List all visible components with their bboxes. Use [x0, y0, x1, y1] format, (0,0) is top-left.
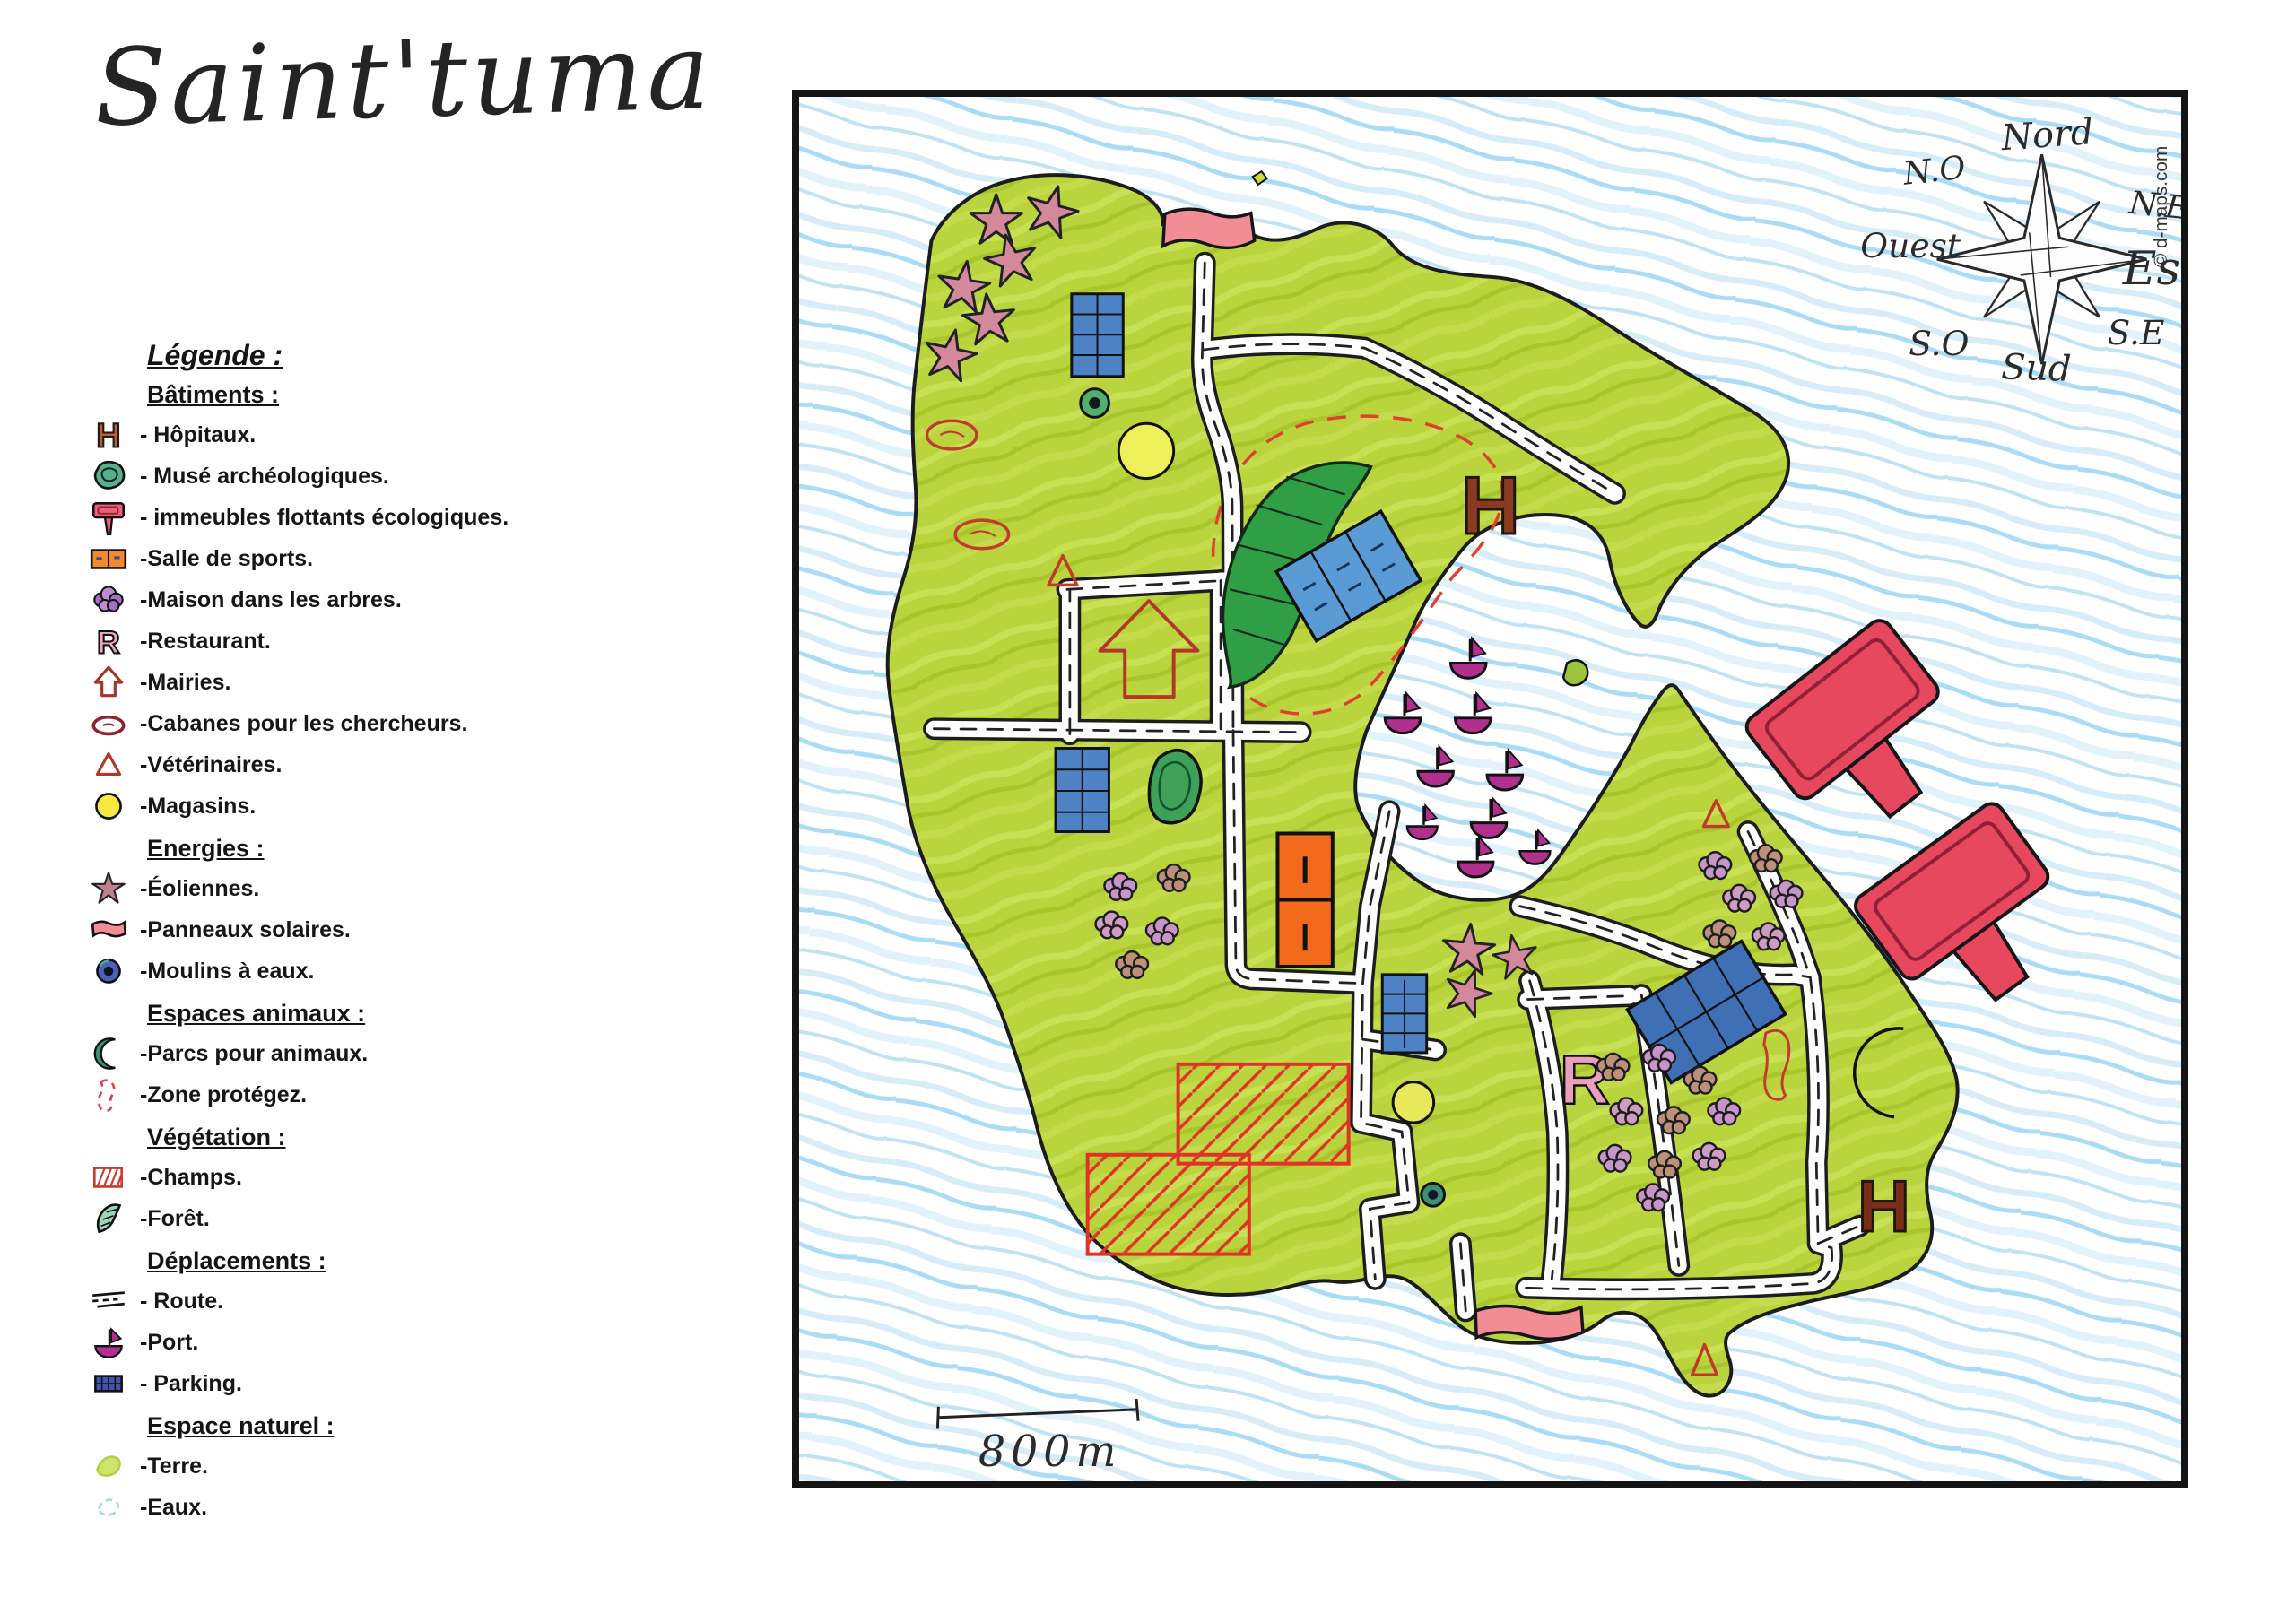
legend-item-label: -Cabanes pour les chercheurs.	[140, 711, 467, 737]
map-title: Saint'tuma	[92, 6, 813, 150]
compass-northwest-label: N.O	[1900, 150, 1967, 193]
vet-triangle-icon	[88, 744, 129, 785]
legend-item: - immeubles flottants écologiques.	[88, 497, 518, 538]
legend-item-label: - immeubles flottants écologiques.	[140, 505, 509, 531]
legend-item: -Terre.	[88, 1445, 518, 1487]
legend-section-title: Déplacements :	[147, 1247, 518, 1275]
shop-circle-icon	[88, 785, 129, 827]
shop-north	[1118, 423, 1173, 478]
legend-item-label: -Restaurant.	[140, 629, 271, 655]
port-boat-icon	[88, 1322, 129, 1363]
floating-building-t-icon	[88, 497, 129, 538]
small-islet	[1563, 660, 1587, 685]
legend-section-title: Bâtiments :	[147, 381, 518, 409]
legend-item-label: -Maison dans les arbres.	[140, 587, 402, 613]
legend-section-title: Végétation :	[147, 1124, 518, 1151]
legend-section-title: Energies :	[147, 835, 518, 863]
water-mill-south	[1422, 1183, 1445, 1206]
legend-item-label: -Éoliennes.	[140, 876, 259, 902]
scale-label: 800m	[978, 1428, 1121, 1477]
hospital-north-icon: H	[1461, 461, 1520, 551]
legend-item: - Hôpitaux.	[88, 414, 518, 456]
museum-building	[1149, 751, 1201, 823]
compass-north-label: Nord	[1999, 111, 2095, 159]
wind-turbine-star-icon	[88, 868, 129, 909]
solar-panel-icon	[88, 909, 129, 950]
legend-item: -Port.	[88, 1322, 518, 1363]
road-dashes-icon	[88, 1280, 129, 1322]
legend-item: - Route.	[88, 1280, 518, 1322]
compass-southwest-label: S.O	[1909, 324, 1969, 363]
legend-item-label: - Parking.	[140, 1371, 242, 1397]
legend-title: Légende :	[147, 339, 518, 372]
legend-section: Déplacements :- Route.-Port.- Parking.	[88, 1247, 518, 1404]
legend-item: - Parking.	[88, 1363, 518, 1404]
legend-section: Energies :-Éoliennes.-Panneaux solaires.…	[88, 835, 518, 992]
legend: Légende : Bâtiments :- Hôpitaux.- Musé a…	[88, 339, 518, 1528]
legend-item-label: -Mairies.	[140, 670, 230, 696]
legend-item-label: -Forêt.	[140, 1206, 210, 1232]
legend-item: -Cabanes pour les chercheurs.	[88, 703, 518, 744]
town-hall-arrow-icon	[88, 662, 129, 703]
animal-park-crescent-icon	[88, 1033, 129, 1074]
legend-item: -Eaux.	[88, 1487, 518, 1528]
legend-item: -Mairies.	[88, 662, 518, 703]
page: { "title": "Saint'tuma", "map": { "copyr…	[0, 0, 2296, 1623]
legend-item-label: - Hôpitaux.	[140, 422, 256, 448]
hospital-southeast-icon: H	[1857, 1167, 1910, 1247]
legend-item-label: -Zone protégez.	[140, 1082, 307, 1108]
legend-item: -Zone protégez.	[88, 1074, 518, 1115]
legend-item-label: -Parcs pour animaux.	[140, 1041, 368, 1067]
solar-panel-north	[1163, 209, 1255, 247]
hospital-h-icon	[88, 414, 129, 456]
restaurant-icon: R	[1560, 1041, 1610, 1118]
legend-item: - Musé archéologiques.	[88, 456, 518, 497]
legend-item: -Vétérinaires.	[88, 744, 518, 785]
parking-west	[1056, 748, 1109, 831]
water-mill-icon	[88, 950, 129, 992]
island-map-drawing: H H R	[799, 97, 2181, 1481]
legend-section-title: Espace naturel :	[147, 1412, 518, 1440]
legend-item: -Champs.	[88, 1157, 518, 1198]
legend-sections: Bâtiments :- Hôpitaux.- Musé archéologiq…	[88, 381, 518, 1528]
legend-item: -Maison dans les arbres.	[88, 579, 518, 621]
legend-item-label: -Moulins à eaux.	[140, 959, 314, 985]
legend-item: -Forêt.	[88, 1198, 518, 1239]
legend-item-label: -Magasins.	[140, 794, 256, 820]
compass-west-label: Ouest	[1860, 226, 1961, 265]
sports-hall-icon	[88, 538, 129, 579]
legend-item: -Salle de sports.	[88, 538, 518, 579]
legend-item: -Moulins à eaux.	[88, 950, 518, 992]
sports-hall-building	[1277, 833, 1332, 966]
legend-section-title: Espaces animaux :	[147, 1000, 518, 1028]
copyright-credit: © d-maps.com	[2151, 146, 2171, 267]
legend-item: -Parcs pour animaux.	[88, 1033, 518, 1074]
parking-grid-icon	[88, 1363, 129, 1404]
museum-blob-icon	[88, 456, 129, 497]
legend-item-label: -Terre.	[140, 1454, 208, 1480]
legend-section: Végétation :-Champs.-Forêt.	[88, 1124, 518, 1239]
legend-section: Espace naturel :-Terre.-Eaux.	[88, 1412, 518, 1528]
legend-item-label: - Route.	[140, 1289, 223, 1315]
legend-item: -Éoliennes.	[88, 868, 518, 909]
legend-section: Espaces animaux :-Parcs pour animaux.-Zo…	[88, 1000, 518, 1115]
legend-item-label: -Champs.	[140, 1165, 242, 1191]
protected-zone-icon	[88, 1074, 129, 1115]
solar-panel-south	[1475, 1306, 1583, 1339]
legend-item-label: - Musé archéologiques.	[140, 464, 389, 490]
compass-southeast-label: S.E	[2108, 313, 2165, 352]
legend-item-label: -Salle de sports.	[140, 546, 313, 572]
legend-item: -Restaurant.	[88, 621, 518, 662]
field-hatch-icon	[88, 1157, 129, 1198]
legend-item: -Magasins.	[88, 785, 518, 827]
island-map: H H R	[792, 90, 2188, 1488]
forest-leaf-icon	[88, 1198, 129, 1239]
shop-south	[1393, 1082, 1434, 1124]
researcher-cabin-icon	[88, 703, 129, 744]
legend-item-label: -Vétérinaires.	[140, 752, 282, 778]
parking-north	[1072, 294, 1123, 377]
legend-section: Bâtiments :- Hôpitaux.- Musé archéologiq…	[88, 381, 518, 827]
legend-item-label: -Port.	[140, 1330, 198, 1356]
legend-item: -Panneaux solaires.	[88, 909, 518, 950]
compass-south-label: Sud	[2001, 346, 2073, 390]
tree-house-icon	[88, 579, 129, 621]
legend-item-label: -Panneaux solaires.	[140, 917, 351, 943]
water-scribble-icon	[88, 1487, 129, 1528]
land-scribble-icon	[88, 1445, 129, 1487]
legend-item-label: -Eaux.	[140, 1495, 207, 1521]
restaurant-r-icon	[88, 621, 129, 662]
water-mill-north	[1081, 389, 1109, 418]
parking-small-vertical	[1382, 975, 1426, 1053]
